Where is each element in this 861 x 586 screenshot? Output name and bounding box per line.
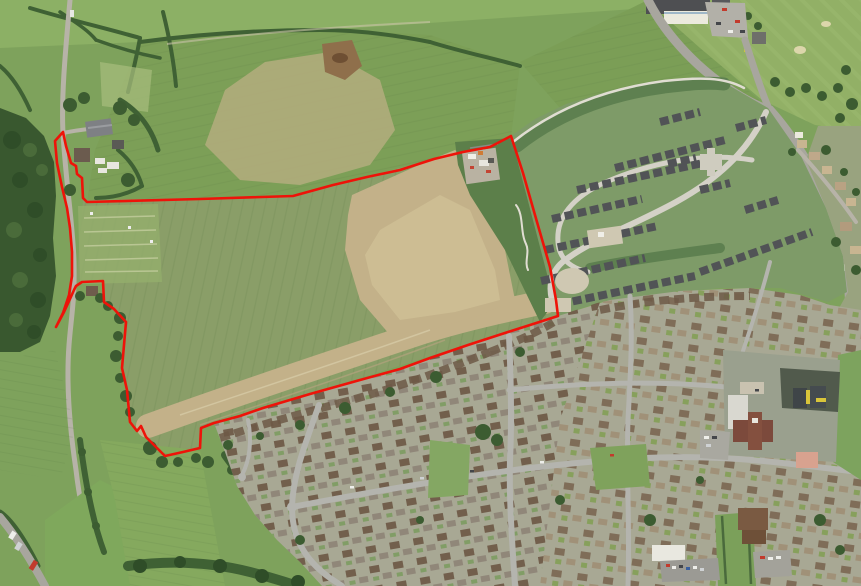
village-green [555,268,589,294]
soil-mound-dark [332,53,348,63]
aerial-map [0,0,861,586]
golf-shed [752,32,766,44]
estate-green-west [428,440,470,498]
pub-building [738,508,768,530]
allotments [78,204,162,284]
school-parking [700,430,730,460]
white-shop-building [652,545,685,561]
farmhouse-roof [74,148,90,162]
golf-bunker [821,21,831,27]
car-on-lane [70,10,74,17]
salmon-roof-building [796,452,818,468]
golf-bunker [794,46,806,54]
estate-green [590,444,650,490]
